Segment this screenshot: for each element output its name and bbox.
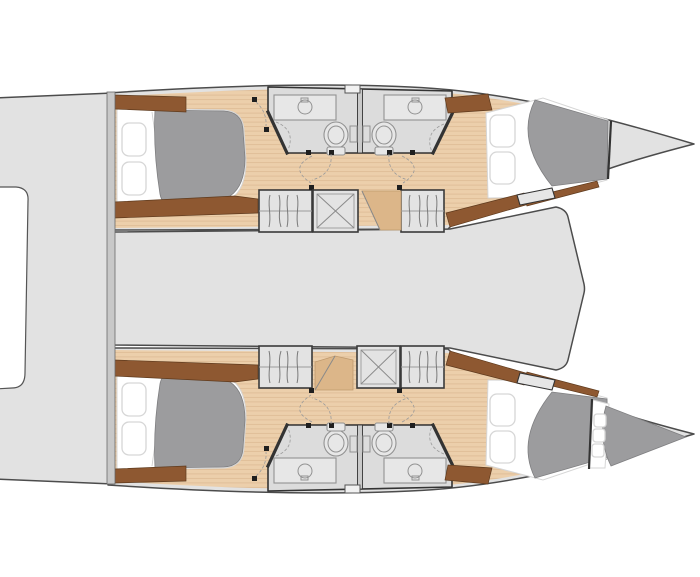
companionway-hatch <box>313 190 358 232</box>
catamaran-plan <box>0 0 700 577</box>
cushion <box>592 444 604 457</box>
cushion <box>593 429 605 442</box>
forepeak-berth-duvet <box>602 406 686 466</box>
stern-notch <box>0 187 28 389</box>
forepeak-berth <box>589 399 686 469</box>
cushion <box>594 414 606 427</box>
port-hull <box>108 85 694 232</box>
companionway-steps <box>315 356 353 390</box>
transom-bulkhead-strip <box>107 92 115 484</box>
companionway-hatch <box>357 346 400 388</box>
floor-plan-canvas <box>0 0 700 577</box>
